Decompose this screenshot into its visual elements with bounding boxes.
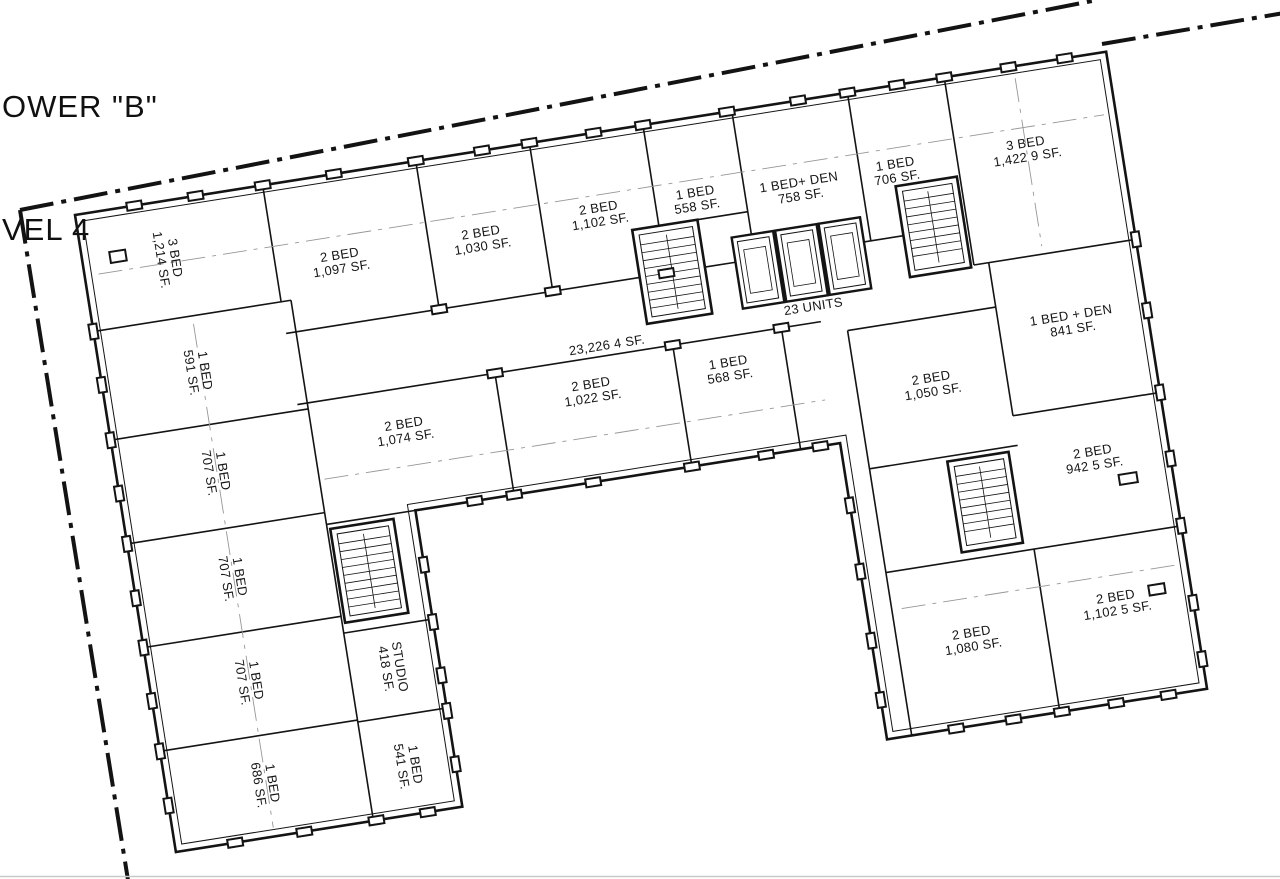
unit-labels: 3 BED 1,214 SF. 2 BED 1,097 SF. 2 BED 1,… bbox=[150, 86, 1169, 815]
wall-tick-icon bbox=[866, 633, 876, 649]
unit-2bed-1050: 2 BED 1,050 SF. bbox=[901, 366, 962, 404]
wall-tick-icon bbox=[839, 88, 855, 98]
wall-tick-icon bbox=[296, 827, 312, 837]
wall-tick-icon bbox=[719, 107, 735, 117]
wall-tick-icon bbox=[255, 180, 271, 190]
unit-3bed-1214: 3 BED 1,214 SF. bbox=[150, 228, 188, 289]
fixture-icon bbox=[1119, 472, 1138, 485]
wall-tick-icon bbox=[658, 268, 674, 278]
interior-walls bbox=[75, 52, 1207, 852]
property-line-left bbox=[20, 210, 128, 879]
property-line-top-right bbox=[1102, 13, 1280, 44]
fixture-icon bbox=[109, 250, 127, 263]
wall-tick-icon bbox=[138, 640, 148, 656]
wall-tick-icon bbox=[1155, 384, 1165, 400]
wall-tick-icon bbox=[487, 368, 503, 378]
unit-1bed-707-b: 1 BED 707 SF. bbox=[215, 553, 251, 603]
wall-tick-icon bbox=[684, 461, 700, 471]
wall-tick-icon bbox=[419, 557, 429, 573]
wall-tick-icon bbox=[326, 169, 342, 179]
wall-tick-icon bbox=[227, 838, 243, 848]
stairwell-symbol bbox=[330, 519, 408, 623]
unit-2bed-1080: 2 BED 1,080 SF. bbox=[942, 621, 1003, 659]
wall-tick-icon bbox=[467, 496, 483, 506]
wall-tick-icon bbox=[790, 95, 806, 105]
unit-2bed-1097: 2 BED 1,097 SF. bbox=[310, 243, 371, 281]
wall-tick-icon bbox=[436, 667, 446, 683]
wall-tick-icon bbox=[948, 723, 964, 733]
wall-tick-icon bbox=[420, 807, 436, 817]
wall-tick-icon bbox=[1131, 231, 1141, 247]
elevator-bank bbox=[732, 217, 872, 308]
wall-tick-icon bbox=[122, 536, 132, 552]
wall-tick-icon bbox=[474, 145, 490, 155]
wall-tick-icon bbox=[431, 304, 447, 314]
wall-tick-icon bbox=[889, 80, 905, 90]
wall-tick-icon bbox=[506, 490, 522, 500]
stairwell-symbol bbox=[896, 177, 972, 278]
unit-2bed-1102-5: 2 BED 1,102 5 SF. bbox=[1080, 584, 1153, 623]
wall-tick-icon bbox=[97, 377, 107, 393]
wall-tick-icon bbox=[131, 590, 141, 606]
wall-tick-icon bbox=[187, 191, 203, 201]
wall-tick-icon bbox=[845, 497, 855, 513]
total-area-label: 23,226 4 SF. bbox=[568, 331, 646, 358]
unit-2bed-942: 2 BED 942 5 SF. bbox=[1063, 439, 1124, 477]
unit-1bed-707-c: 1 BED 707 SF. bbox=[232, 656, 268, 706]
wall-tick-icon bbox=[521, 138, 537, 148]
wall-tick-icon bbox=[1165, 451, 1175, 467]
unit-1bed-den-841: 1 BED + DEN 841 SF. bbox=[1029, 301, 1116, 343]
unit-1bed-591: 1 BED 591 SF. bbox=[181, 347, 217, 397]
wall-tick-icon bbox=[1054, 707, 1070, 717]
wall-tick-icon bbox=[450, 756, 460, 772]
wall-tick-icon bbox=[665, 340, 681, 350]
wall-tick-icon bbox=[428, 614, 438, 630]
stairwells bbox=[291, 175, 1023, 649]
unit-2bed-1074: 2 BED 1,074 SF. bbox=[374, 412, 435, 450]
wall-tick-icon bbox=[155, 743, 165, 759]
wall-tick-icon bbox=[1197, 651, 1207, 667]
property-line-top bbox=[20, 1, 1092, 210]
unit-2bed-1102: 2 BED 1,102 SF. bbox=[569, 196, 630, 234]
wall-tick-icon bbox=[147, 693, 157, 709]
unit-1bed-707-a: 1 BED 707 SF. bbox=[199, 447, 235, 497]
unit-1bed-den-758: 1 BED+ DEN 758 SF. bbox=[758, 168, 841, 209]
exterior-wall-outline bbox=[75, 52, 1207, 852]
wall-tick-icon bbox=[1057, 53, 1073, 63]
wall-tick-icon bbox=[773, 323, 789, 333]
floor-plan-drawing: 3 BED 1,214 SF. 2 BED 1,097 SF. 2 BED 1,… bbox=[0, 0, 1280, 879]
unit-1bed-568: 1 BED 568 SF. bbox=[704, 351, 754, 387]
wall-tick-icon bbox=[1108, 698, 1124, 708]
wall-tick-icon bbox=[855, 563, 865, 579]
unit-studio-418: STUDIO 418 SF. bbox=[375, 640, 412, 695]
wall-tick-icon bbox=[163, 798, 173, 814]
wall-tick-icon bbox=[88, 324, 98, 340]
wall-tick-icon bbox=[585, 477, 601, 487]
wall-tick-icon bbox=[936, 72, 952, 82]
exterior-wall-inner-line bbox=[83, 60, 1199, 844]
wall-tick-icon bbox=[114, 485, 124, 501]
wall-tick-icon bbox=[408, 156, 424, 166]
wall-tick-icon bbox=[1142, 302, 1152, 318]
unit-3bed-1422: 3 BED 1,422 9 SF. bbox=[990, 130, 1063, 169]
wall-tick-icon bbox=[126, 200, 142, 210]
floor-plan-sheet: { "title": { "line1": "OWER \"B\"", "lin… bbox=[0, 0, 1280, 879]
wall-tick-icon bbox=[1188, 595, 1198, 611]
wall-tick-icon bbox=[106, 432, 116, 448]
fixture-symbols bbox=[109, 97, 1165, 748]
wall-tick-icon bbox=[812, 441, 828, 451]
wall-tick-icon bbox=[635, 120, 651, 130]
svg-text:23,226 4 SF.: 23,226 4 SF. bbox=[568, 331, 646, 358]
wall-tick-icon bbox=[368, 815, 384, 825]
unit-1bed-686: 1 BED 686 SF. bbox=[248, 759, 284, 809]
wall-tick-icon bbox=[545, 286, 561, 296]
unit-1bed-558: 1 BED 558 SF. bbox=[671, 181, 721, 217]
unit-2bed-1030: 2 BED 1,030 SF. bbox=[451, 220, 512, 258]
wall-tick-icon bbox=[586, 128, 602, 138]
wall-tick-icon bbox=[442, 703, 452, 719]
wall-tick-icon bbox=[1000, 62, 1016, 72]
unit-1bed-541: 1 BED 541 SF. bbox=[391, 740, 427, 790]
wall-tick-icon bbox=[758, 450, 774, 460]
unit-2bed-1022: 2 BED 1,022 SF. bbox=[561, 372, 622, 410]
wall-tick-icon bbox=[1005, 714, 1021, 724]
fixture-icon bbox=[1148, 583, 1165, 595]
wall-tick-icon bbox=[1160, 690, 1176, 700]
stairwell-symbol bbox=[947, 452, 1023, 553]
wall-tick-icon bbox=[876, 692, 886, 708]
wall-tick-icon bbox=[1176, 518, 1186, 534]
